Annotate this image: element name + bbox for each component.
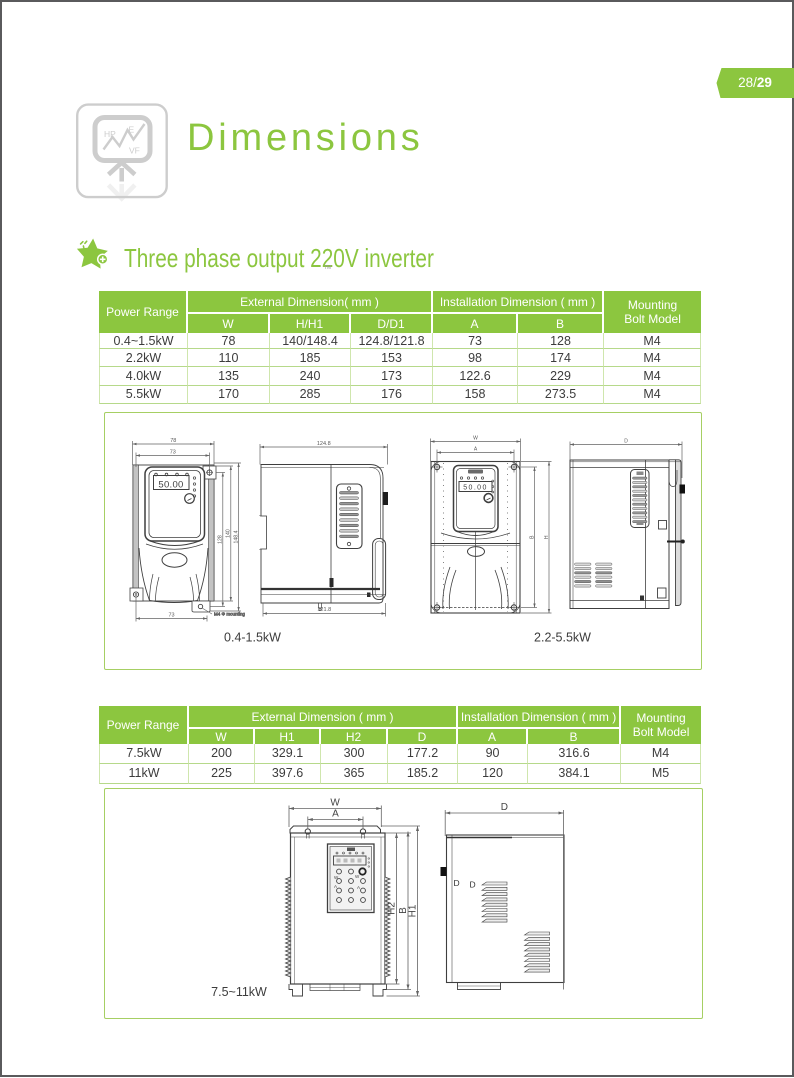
svg-text:73: 73 — [168, 613, 174, 619]
svg-text:HP: HP — [104, 129, 116, 139]
svg-text:D: D — [624, 439, 628, 445]
svg-text:H2: H2 — [387, 902, 398, 915]
svg-text:50.00: 50.00 — [463, 484, 488, 491]
svg-text:W: W — [330, 798, 340, 809]
svg-text:121.8: 121.8 — [317, 607, 331, 613]
svg-text:A: A — [332, 809, 339, 820]
svg-text:H1: H1 — [408, 904, 419, 917]
svg-text:A: A — [474, 447, 478, 453]
svg-text:2.2-5.5kW: 2.2-5.5kW — [534, 631, 591, 645]
svg-text:0.4-1.5kW: 0.4-1.5kW — [224, 631, 281, 645]
svg-text:148.4: 148.4 — [233, 530, 239, 543]
svg-text:D: D — [501, 802, 508, 813]
svg-text:124.8: 124.8 — [317, 441, 331, 447]
svg-text:VF: VF — [129, 146, 140, 156]
svg-text:128: 128 — [218, 535, 224, 544]
svg-text:E: E — [129, 125, 135, 135]
svg-text:140: 140 — [226, 529, 232, 538]
svg-text:D: D — [470, 880, 476, 890]
svg-text:A: A — [357, 885, 360, 890]
svg-text:H: H — [544, 535, 550, 539]
svg-text:W: W — [473, 436, 478, 442]
svg-text:7.5~11kW: 7.5~11kW — [211, 985, 267, 999]
svg-text:D: D — [454, 878, 460, 888]
svg-text:M4 Φ mounting: M4 Φ mounting — [214, 612, 245, 617]
svg-text:A: A — [334, 884, 337, 889]
svg-text:50.00: 50.00 — [158, 479, 183, 490]
svg-text:73: 73 — [170, 450, 176, 456]
svg-text:78: 78 — [170, 438, 176, 444]
